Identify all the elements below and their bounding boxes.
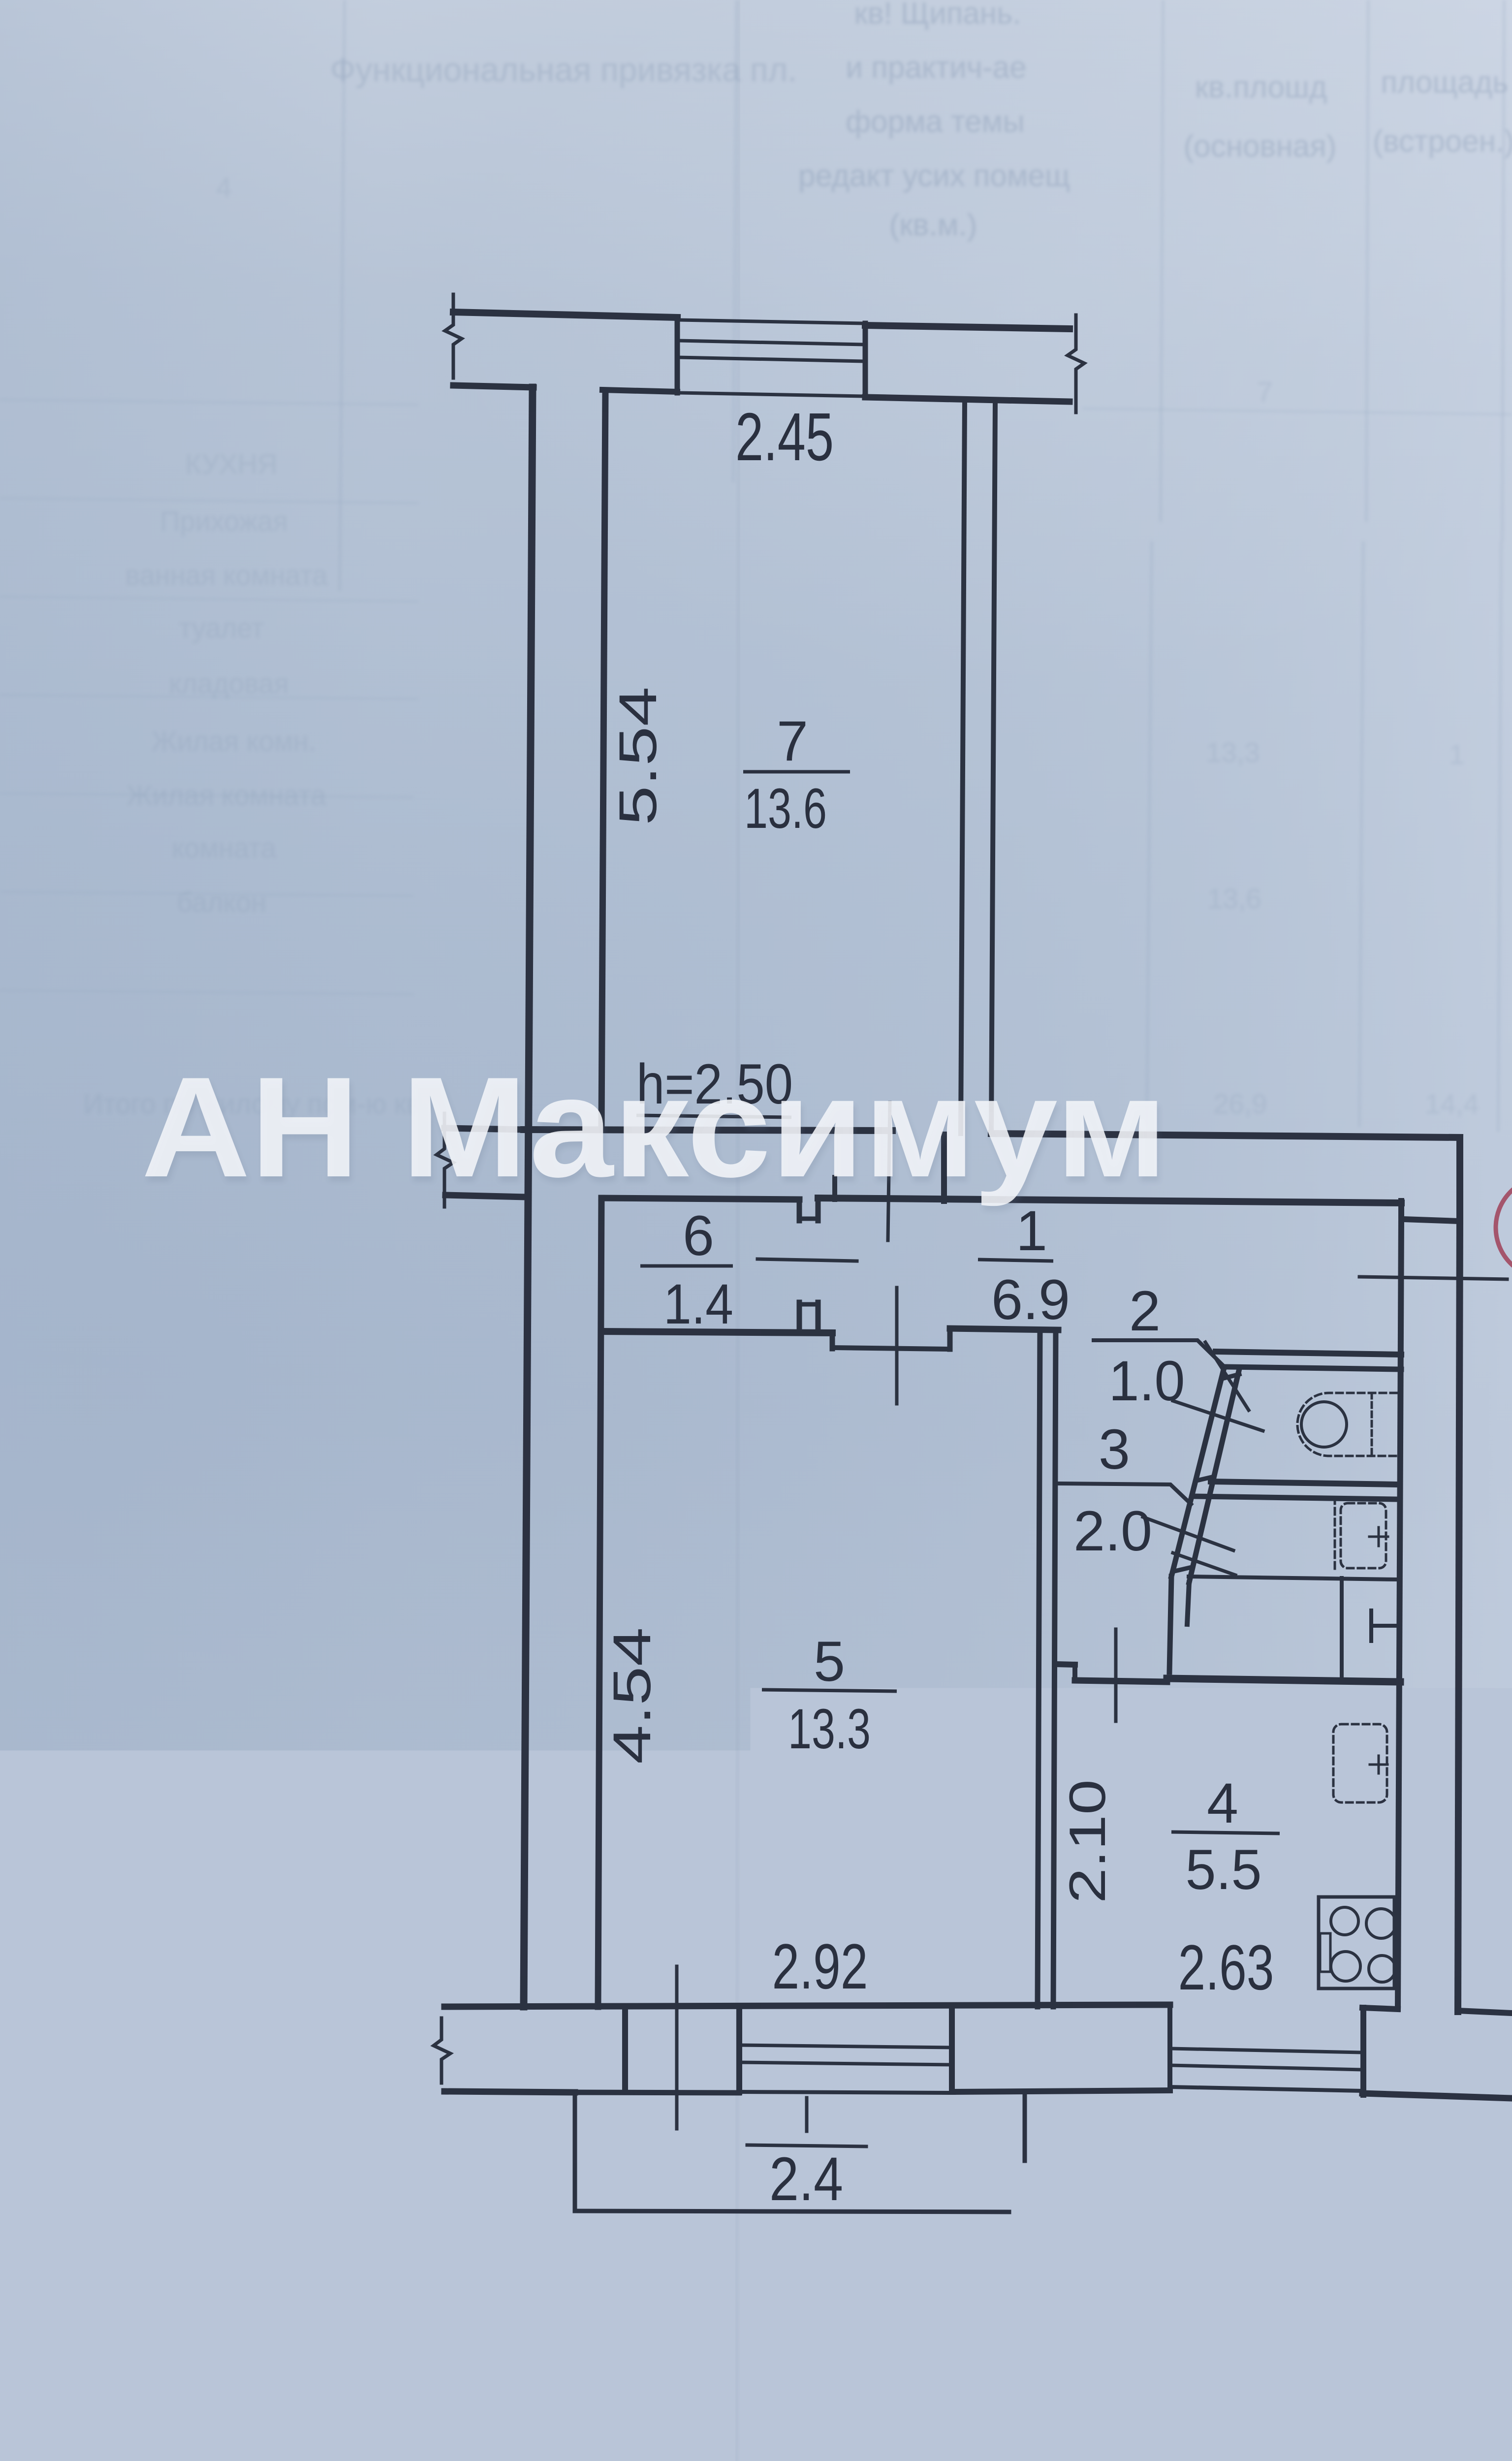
svg-text:кладовая: кладовая bbox=[169, 668, 288, 699]
svg-text:балкон: балкон bbox=[177, 886, 266, 917]
svg-text:Жилая комната: Жилая комната bbox=[127, 780, 326, 811]
svg-text:6: 6 bbox=[683, 1204, 714, 1267]
svg-text:1: 1 bbox=[1449, 739, 1464, 770]
svg-text:АН Максимум: АН Максимум bbox=[141, 1047, 1167, 1207]
svg-text:ванная комната: ванная комната bbox=[126, 560, 328, 591]
svg-text:13,6: 13,6 bbox=[1208, 883, 1261, 914]
svg-text:5: 5 bbox=[814, 1630, 845, 1693]
svg-text:(встроен.): (встроен.) bbox=[1373, 125, 1512, 158]
svg-text:1.4: 1.4 bbox=[663, 1273, 733, 1336]
svg-text:2.45: 2.45 bbox=[735, 399, 834, 475]
svg-text:Прихожая: Прихожая bbox=[160, 505, 288, 536]
svg-text:редакт усих помещ: редакт усих помещ bbox=[798, 159, 1070, 193]
svg-text:4: 4 bbox=[216, 172, 231, 203]
svg-text:5.54: 5.54 bbox=[608, 687, 667, 825]
svg-text:и практич-ае: и практич-ае bbox=[846, 51, 1026, 85]
svg-text:7: 7 bbox=[1257, 376, 1272, 407]
svg-text:13,3: 13,3 bbox=[1206, 737, 1260, 768]
svg-text:3: 3 bbox=[1099, 1418, 1130, 1481]
svg-text:форма темы: форма темы bbox=[846, 105, 1025, 139]
svg-text:2.63: 2.63 bbox=[1178, 1931, 1274, 2003]
svg-text:2.0: 2.0 bbox=[1073, 1500, 1152, 1563]
svg-text:26,9: 26,9 bbox=[1214, 1088, 1267, 1119]
svg-text:13.3: 13.3 bbox=[788, 1698, 871, 1761]
svg-text:(кв.м.): (кв.м.) bbox=[889, 208, 977, 242]
svg-text:2.4: 2.4 bbox=[769, 2145, 843, 2213]
svg-text:7: 7 bbox=[777, 710, 808, 773]
svg-text:6.9: 6.9 bbox=[991, 1268, 1070, 1331]
svg-text:площадь: площадь bbox=[1381, 65, 1509, 99]
svg-text:кв.плошд: кв.плошд bbox=[1195, 70, 1327, 104]
svg-text:2.92: 2.92 bbox=[772, 1930, 868, 2002]
svg-text:2: 2 bbox=[1129, 1280, 1161, 1343]
svg-text:14,4: 14,4 bbox=[1425, 1088, 1479, 1119]
svg-text:Жилая комн.: Жилая комн. bbox=[152, 726, 316, 757]
svg-text:кв! Щипань.: кв! Щипань. bbox=[854, 0, 1021, 31]
svg-text:(основная): (основная) bbox=[1184, 129, 1337, 163]
svg-text:КУХНЯ: КУХНЯ bbox=[185, 448, 277, 479]
svg-text:5.5: 5.5 bbox=[1186, 1838, 1262, 1901]
svg-text:Функциональная привязка пл.: Функциональная привязка пл. bbox=[330, 51, 797, 89]
svg-text:4.54: 4.54 bbox=[602, 1627, 661, 1764]
svg-text:комната: комната bbox=[172, 832, 277, 863]
svg-text:13.6: 13.6 bbox=[744, 777, 827, 840]
svg-text:4: 4 bbox=[1207, 1772, 1238, 1835]
svg-text:туалет: туалет bbox=[179, 612, 264, 643]
svg-text:2.10: 2.10 bbox=[1059, 1779, 1116, 1903]
svg-text:1.0: 1.0 bbox=[1109, 1350, 1185, 1413]
